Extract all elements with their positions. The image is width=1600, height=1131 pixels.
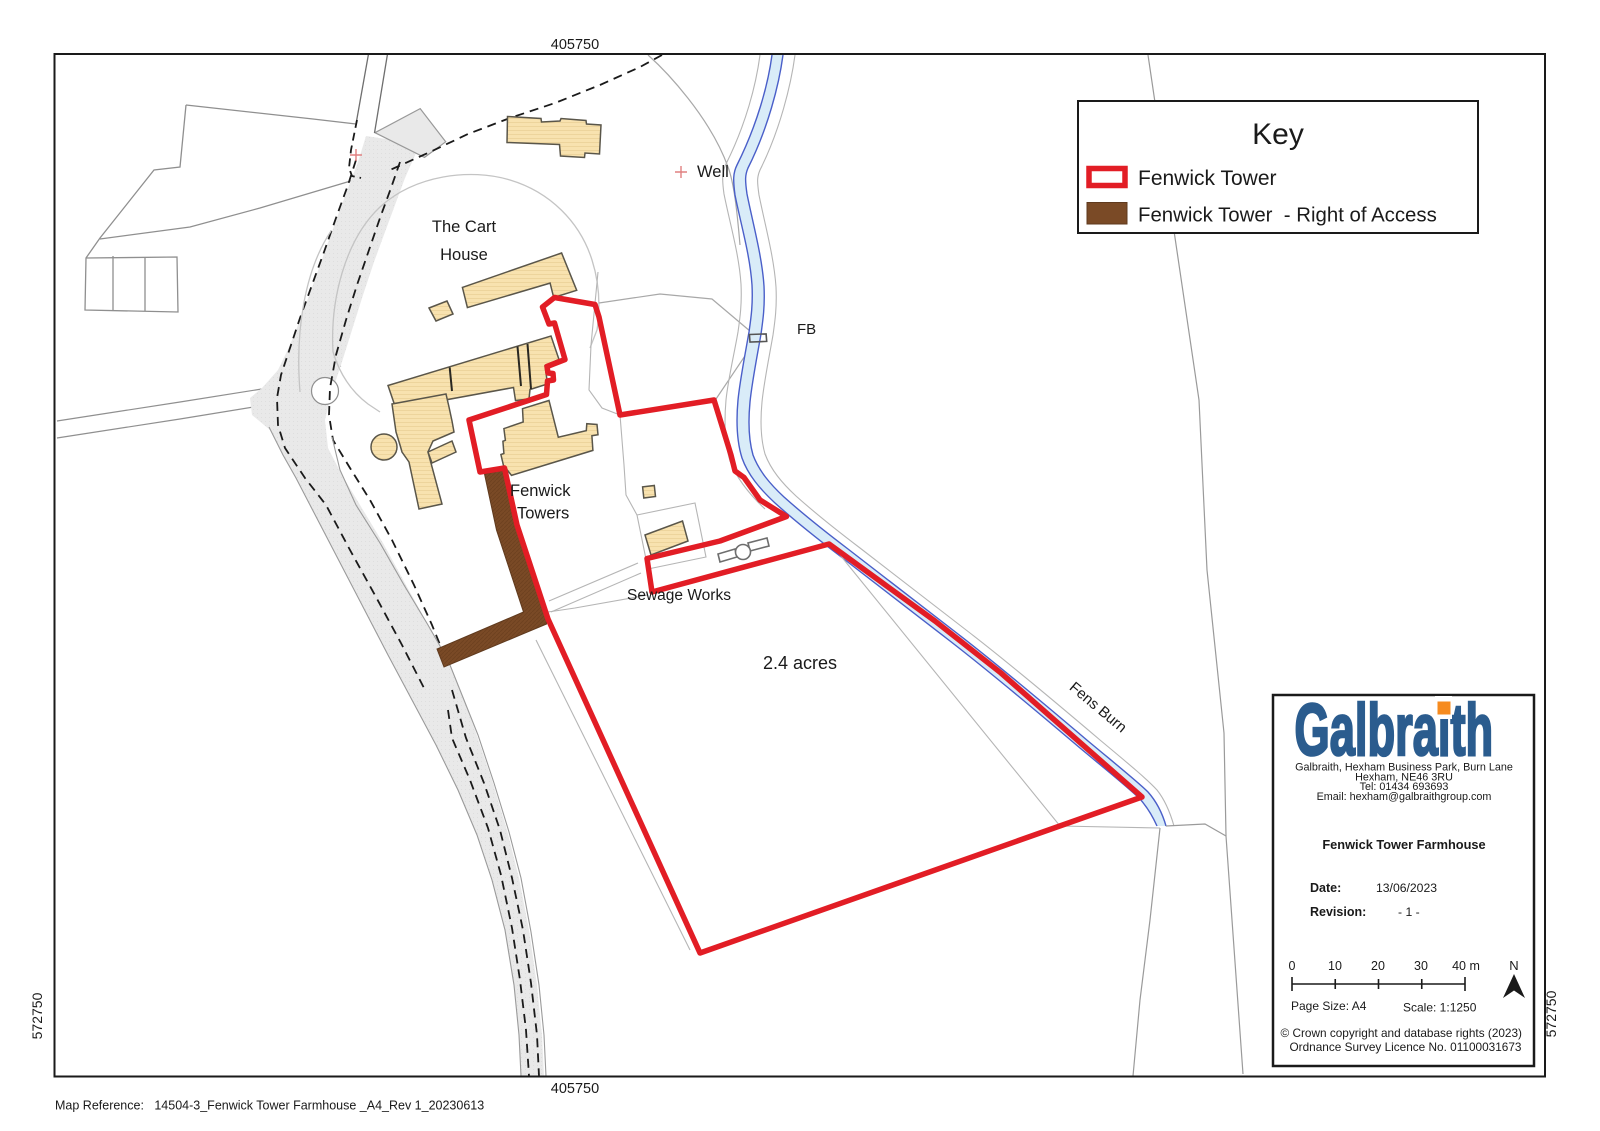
svg-text:20: 20	[1371, 959, 1385, 973]
svg-text:- 1 -: - 1 -	[1398, 905, 1420, 919]
svg-text:Fenwick Tower - Right of Acce: Fenwick Tower - Right of Access	[1138, 205, 1437, 227]
svg-text:FB: FB	[797, 321, 816, 338]
svg-text:405750: 405750	[551, 1081, 599, 1097]
svg-text:0: 0	[1289, 959, 1296, 973]
svg-text:13/06/2023: 13/06/2023	[1376, 881, 1437, 895]
svg-text:10: 10	[1328, 959, 1342, 973]
svg-text:© Crown copyright and database: © Crown copyright and database rights (2…	[1281, 1026, 1523, 1040]
svg-text:Key: Key	[1252, 118, 1304, 151]
svg-text:Sewage Works: Sewage Works	[627, 587, 731, 604]
svg-text:Map Reference: 14504-3_Fenwi: Map Reference: 14504-3_Fenwick Tower Far…	[55, 1099, 484, 1113]
svg-text:Scale: 1:1250: Scale: 1:1250	[1403, 1001, 1477, 1015]
svg-text:Page Size: A4: Page Size: A4	[1291, 999, 1367, 1013]
svg-text:572750: 572750	[1543, 990, 1559, 1037]
svg-text:Fenwick Tower: Fenwick Tower	[1138, 167, 1277, 190]
svg-text:The Cart: The Cart	[432, 218, 497, 236]
svg-text:Date:: Date:	[1310, 881, 1341, 895]
svg-text:Fenwick Tower Farmhouse: Fenwick Tower Farmhouse	[1322, 837, 1485, 852]
svg-text:Revision:: Revision:	[1310, 905, 1366, 919]
svg-text:405750: 405750	[551, 37, 599, 53]
svg-text:House: House	[440, 246, 488, 264]
svg-text:Fenwick: Fenwick	[510, 482, 571, 500]
svg-text:Towers: Towers	[517, 505, 569, 523]
svg-text:572750: 572750	[29, 992, 45, 1039]
svg-text:Well: Well	[697, 163, 729, 181]
svg-text:Ordnance Survey Licence No. 01: Ordnance Survey Licence No. 01100031673	[1290, 1040, 1522, 1054]
svg-text:2.4 acres: 2.4 acres	[763, 653, 837, 673]
svg-text:30: 30	[1414, 959, 1428, 973]
svg-text:N: N	[1509, 958, 1518, 973]
svg-text:40 m: 40 m	[1452, 959, 1480, 973]
svg-text:Email: hexham@galbraithgroup.c: Email: hexham@galbraithgroup.com	[1317, 791, 1492, 803]
svg-text:Galbraith: Galbraith	[1295, 689, 1494, 771]
